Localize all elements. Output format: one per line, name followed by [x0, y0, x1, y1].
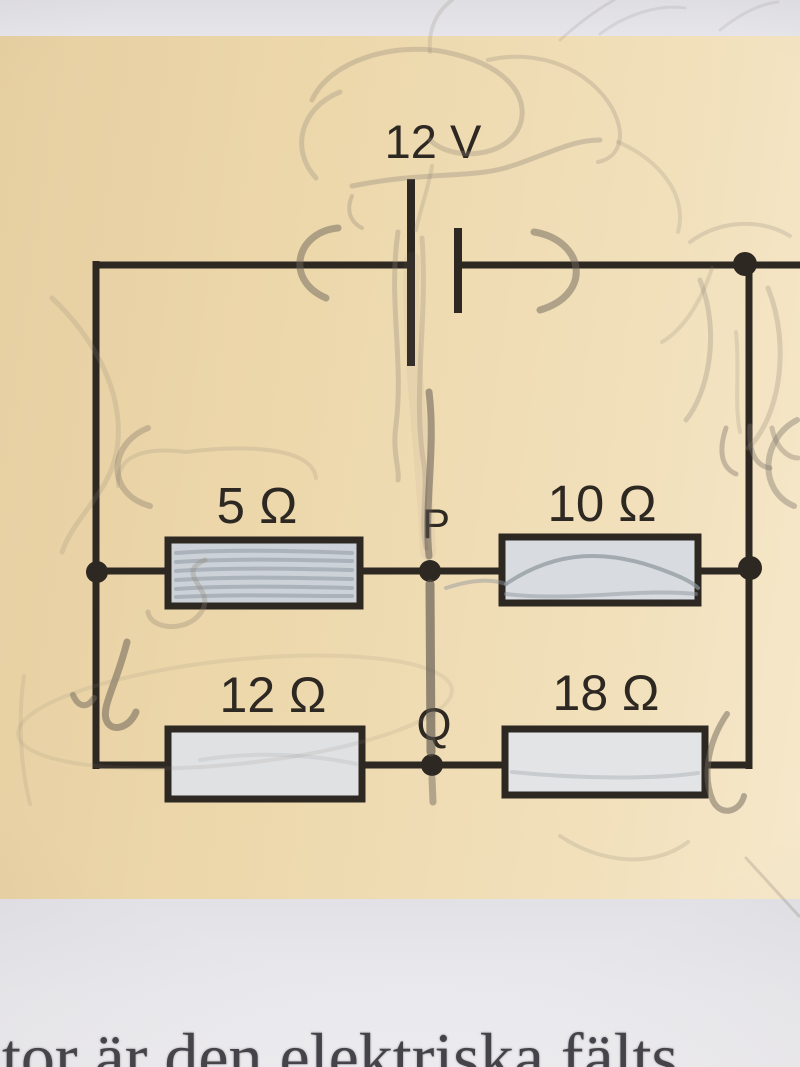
pencil-pq-link-lower: [432, 778, 433, 802]
pencil-scribble: [176, 569, 352, 571]
pencil-scribble: [302, 92, 340, 178]
resistor-18ohm-body: [505, 729, 705, 795]
resistor-18ohm-label: 18 Ω: [553, 665, 660, 721]
node-q: [421, 754, 443, 776]
node-p: [419, 560, 441, 582]
textbook-page-photo: 12 V 5 Ω 10 Ω 12 Ω 18 Ω P Q: [0, 0, 800, 1067]
node-middle-right: [738, 556, 762, 580]
pencil-scribble: [349, 196, 362, 228]
pencil-pq-link-upper: [428, 392, 432, 556]
caption-text-fragment: tor är den elektriska fälts: [2, 1018, 678, 1067]
circuit-diagram: 12 V 5 Ω 10 Ω 12 Ω 18 Ω P Q: [0, 0, 800, 1067]
pencil-scribble: [430, 0, 452, 52]
pencil-scribble: [720, 2, 778, 30]
resistor-12ohm-label: 12 Ω: [220, 667, 327, 723]
pencil-scribble: [746, 858, 799, 916]
pencil-scribble: [560, 836, 688, 859]
resistor-12ohm-body: [168, 729, 362, 799]
pencil-scribble: [748, 288, 780, 448]
pencil-scribble: [534, 232, 576, 310]
pencil-scribble: [600, 7, 685, 34]
pencil-scribble: [560, 0, 614, 40]
pencil-scribble: [73, 695, 94, 705]
pencil-scribble: [618, 142, 680, 232]
pencil-scribble: [722, 428, 736, 474]
pencil-scribble: [662, 268, 712, 342]
pencil-scribble: [446, 581, 506, 588]
pencil-scribble: [736, 332, 740, 432]
pencil-scribble: [52, 298, 118, 552]
pencil-scribble: [488, 57, 620, 162]
resistor-10ohm-label: 10 Ω: [547, 475, 656, 532]
pencil-scribble: [395, 232, 399, 480]
pencil-scribble: [690, 224, 790, 242]
node-middle-left: [86, 561, 108, 583]
resistor-5ohm-label: 5 Ω: [217, 477, 298, 534]
pencil-scribble: [105, 642, 136, 727]
pencil-scribble: [176, 578, 352, 580]
pencil-scribble: [176, 551, 352, 553]
pencil-pq-link: [430, 584, 431, 752]
node-top-right: [733, 252, 757, 276]
